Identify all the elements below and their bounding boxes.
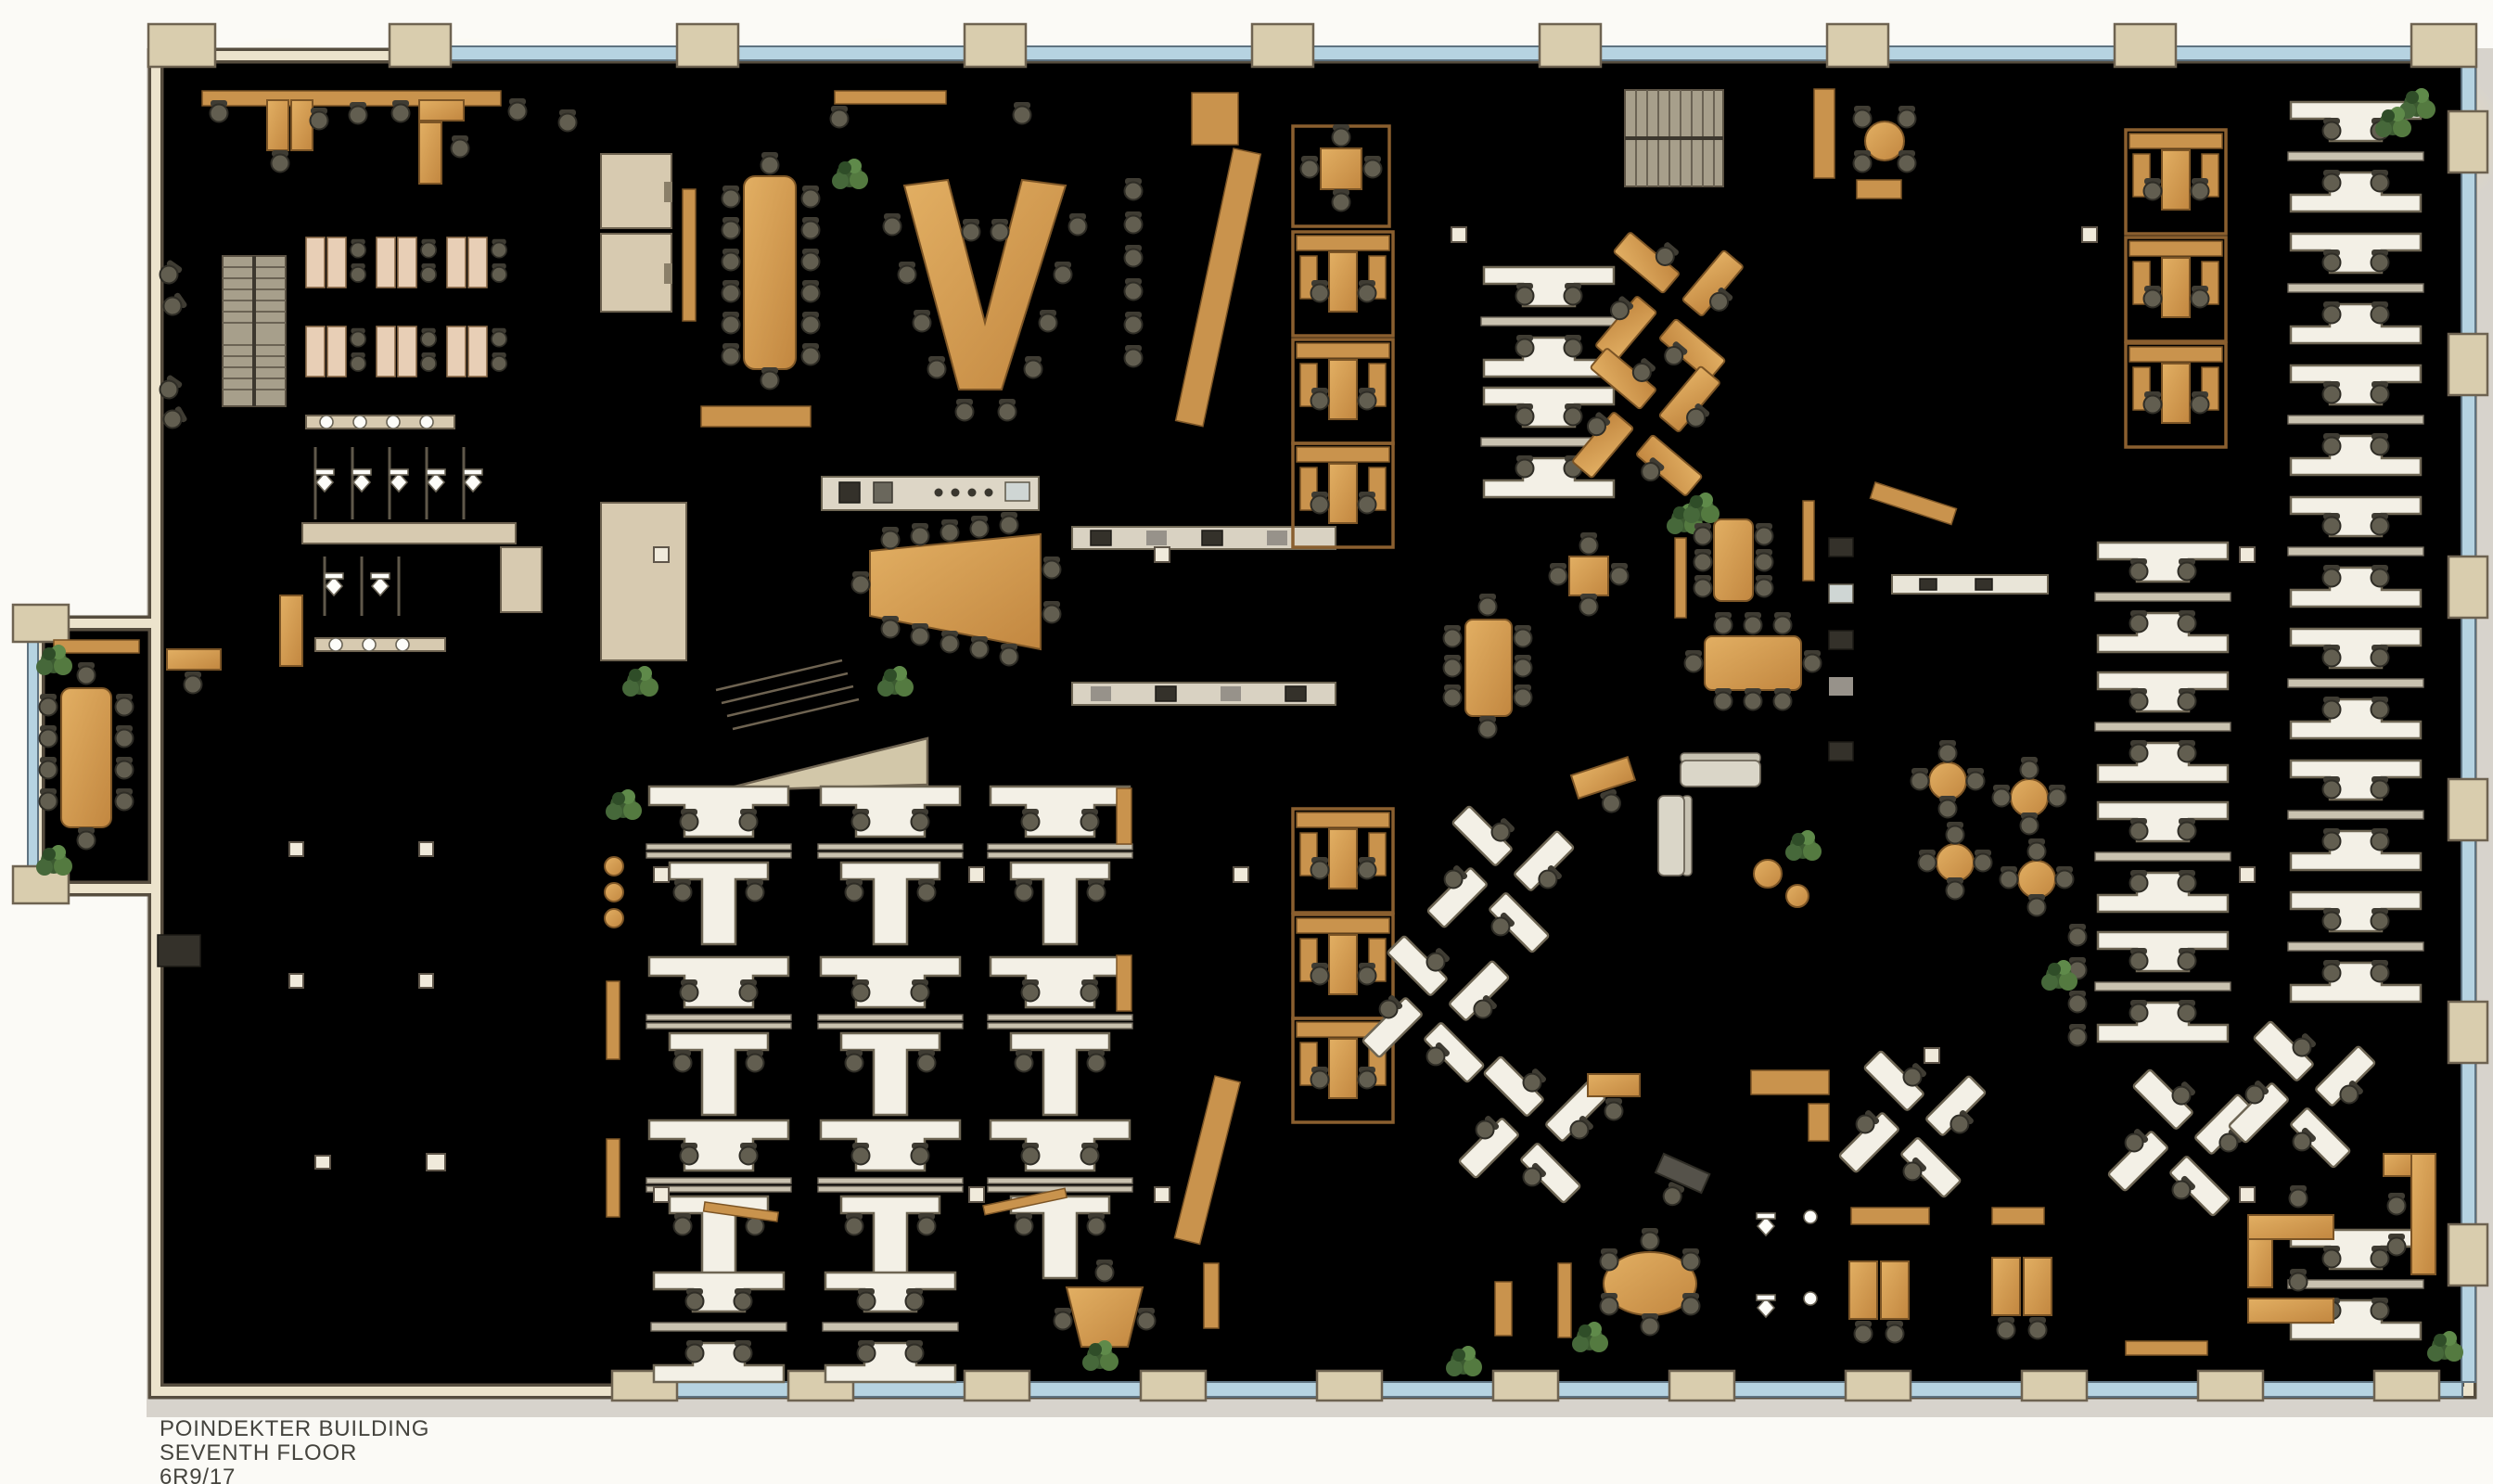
round-table xyxy=(1865,122,1904,160)
workstation-cluster xyxy=(2288,892,2423,1002)
workstation-cluster xyxy=(2288,365,2423,475)
guest-chair xyxy=(509,98,527,121)
workstation-cluster xyxy=(2095,672,2231,782)
title-block: POINDEKTER BUILDING SEVENTH FLOOR 6R9/17 xyxy=(160,1416,429,1484)
guest-chair xyxy=(350,102,367,124)
credenza xyxy=(54,640,139,653)
electrical-panel xyxy=(158,935,200,966)
credenza xyxy=(701,406,811,427)
bench xyxy=(1992,1208,2044,1224)
pouf xyxy=(1786,885,1809,907)
floor-name: SEVENTH FLOOR xyxy=(160,1440,357,1465)
credenza xyxy=(835,91,946,104)
floor-plan-svg: POINDEKTER BUILDING SEVENTH FLOOR 6R9/17 xyxy=(0,0,2493,1484)
servery-counter xyxy=(1892,575,2048,594)
storage-rooms xyxy=(601,503,686,660)
elevator-shaft xyxy=(601,234,671,312)
workstation-cluster xyxy=(823,1273,958,1382)
meeting-table xyxy=(1465,620,1512,716)
east-window-band xyxy=(2461,65,2475,1382)
office-desk xyxy=(1588,1074,1640,1096)
floor-plan-page: POINDEKTER BUILDING SEVENTH FLOOR 6R9/17 xyxy=(0,0,2493,1484)
workstation-cluster xyxy=(651,1273,786,1382)
guest-chair xyxy=(211,100,228,122)
workstation-cluster xyxy=(2095,932,2231,1042)
meeting-table xyxy=(1714,519,1753,601)
elevator-shaft xyxy=(601,154,671,228)
sideboard xyxy=(1192,93,1238,145)
west-window-band xyxy=(28,638,38,877)
small-table xyxy=(1569,556,1608,595)
bench xyxy=(1814,89,1835,178)
northeast-wood-pods xyxy=(2126,130,2226,447)
workstation-cluster xyxy=(2288,761,2423,870)
shelf xyxy=(1204,1263,1219,1328)
workstation-cluster xyxy=(2288,234,2423,343)
shelf xyxy=(1558,1263,1571,1337)
bench xyxy=(1851,1208,1929,1224)
conference-table xyxy=(61,688,111,827)
pouf xyxy=(1754,860,1782,888)
main-stair xyxy=(1625,90,1723,186)
plan-code: 6R9/17 xyxy=(160,1465,236,1484)
workstation-cluster xyxy=(2095,802,2231,912)
workstation-cluster xyxy=(2095,543,2231,652)
bench xyxy=(2126,1341,2207,1355)
bench xyxy=(1495,1282,1512,1336)
cabinet xyxy=(1809,1104,1829,1141)
wardrobe xyxy=(1751,1070,1829,1094)
elevator-core xyxy=(601,154,672,312)
workstation-cluster xyxy=(2288,497,2423,607)
guest-chair xyxy=(1014,102,1031,124)
guest-chair xyxy=(831,106,849,128)
meeting-table xyxy=(1705,636,1801,690)
guest-chair xyxy=(559,109,577,132)
bench xyxy=(1857,180,1901,198)
west-stairwell xyxy=(223,256,286,406)
building-name: POINDEKTER BUILDING xyxy=(160,1416,429,1441)
restroom-counter xyxy=(302,523,516,544)
conference-table xyxy=(744,176,796,369)
workstation-cluster xyxy=(2288,629,2423,738)
kitchenette xyxy=(822,477,1039,510)
